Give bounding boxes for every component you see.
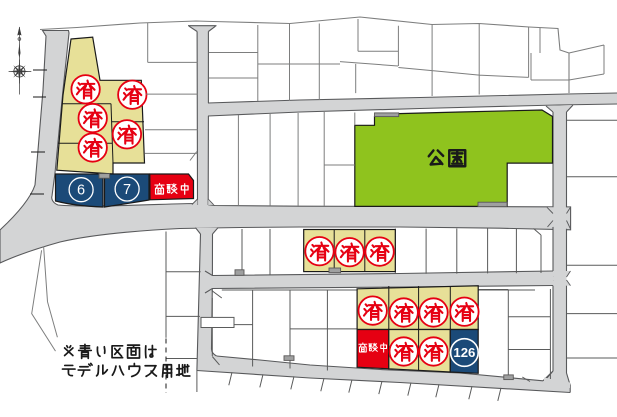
svg-text:6: 6 xyxy=(77,183,85,199)
svg-text:7: 7 xyxy=(123,182,131,198)
svg-text:126: 126 xyxy=(453,345,475,360)
